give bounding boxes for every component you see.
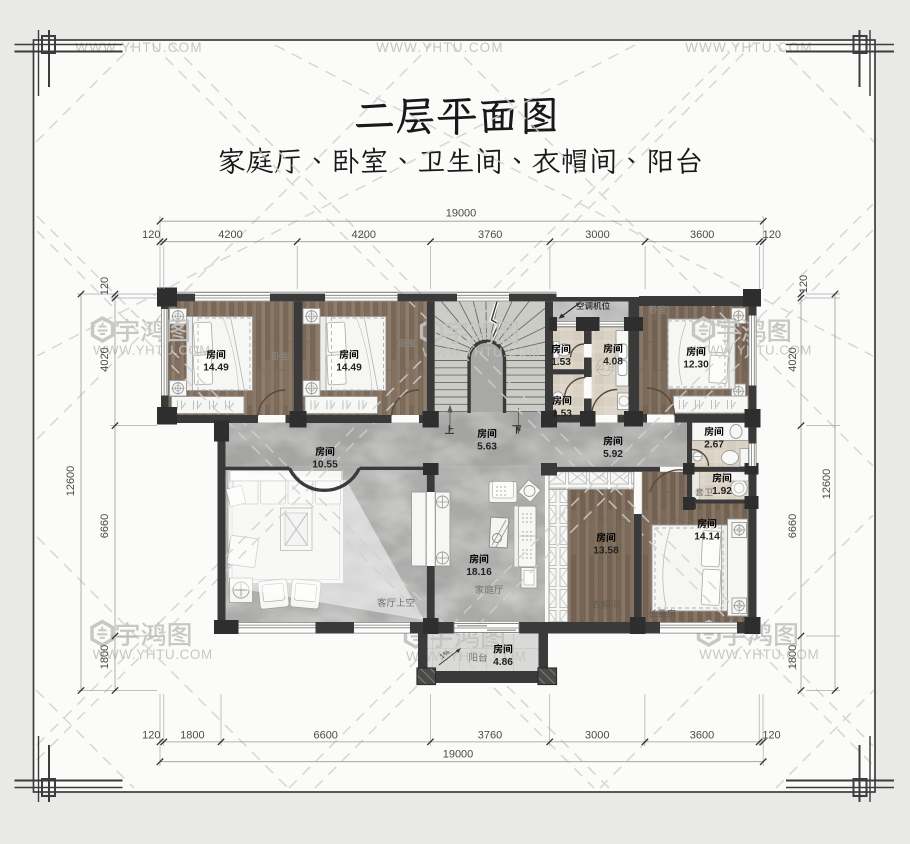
svg-text:120: 120 [99,277,111,295]
svg-text:120: 120 [142,229,160,241]
svg-text:4200: 4200 [218,229,242,241]
svg-text:1800: 1800 [99,645,111,669]
svg-text:14.14: 14.14 [694,531,720,542]
svg-text:WWW.YHTU.COM: WWW.YHTU.COM [75,40,203,55]
svg-text:3760: 3760 [478,730,502,742]
svg-text:14.49: 14.49 [336,362,362,373]
svg-text:5.63: 5.63 [477,441,497,452]
svg-text:3000: 3000 [585,229,609,241]
svg-text:12600: 12600 [65,466,77,497]
svg-text:1800: 1800 [787,645,799,669]
svg-text:1.53: 1.53 [551,357,571,368]
svg-text:120: 120 [142,730,160,742]
svg-text:3600: 3600 [690,229,714,241]
svg-text:6660: 6660 [99,514,111,538]
svg-text:4020: 4020 [787,347,799,371]
svg-text:6660: 6660 [787,514,799,538]
svg-text:14.49: 14.49 [203,362,229,373]
svg-text:12600: 12600 [821,469,833,500]
svg-text:19000: 19000 [443,749,474,761]
svg-text:4020: 4020 [99,347,111,371]
svg-text:1.92: 1.92 [712,486,732,497]
svg-text:120: 120 [762,730,780,742]
svg-text:6600: 6600 [313,730,337,742]
svg-text:12.30: 12.30 [683,359,709,370]
svg-text:13.58: 13.58 [593,545,619,556]
svg-text:WWW.YHTU.COM: WWW.YHTU.COM [422,345,540,360]
svg-text:WWW.YHTU.COM: WWW.YHTU.COM [685,40,813,55]
svg-text:4.08: 4.08 [603,356,623,367]
svg-text:5.92: 5.92 [603,449,623,460]
svg-text:4.86: 4.86 [493,657,513,668]
svg-text:2.67: 2.67 [704,439,724,450]
svg-text:4200: 4200 [352,229,376,241]
svg-text:120: 120 [798,275,810,293]
svg-text:18.16: 18.16 [466,567,492,578]
svg-text:1800: 1800 [180,730,204,742]
svg-text:3600: 3600 [690,730,714,742]
svg-text:19000: 19000 [446,208,477,220]
svg-text:1.53: 1.53 [552,408,572,419]
svg-text:3000: 3000 [585,730,609,742]
svg-text:WWW.YHTU.COM: WWW.YHTU.COM [376,40,504,55]
svg-text:120: 120 [763,229,781,241]
svg-text:3760: 3760 [478,229,502,241]
svg-text:10.55: 10.55 [312,459,338,470]
